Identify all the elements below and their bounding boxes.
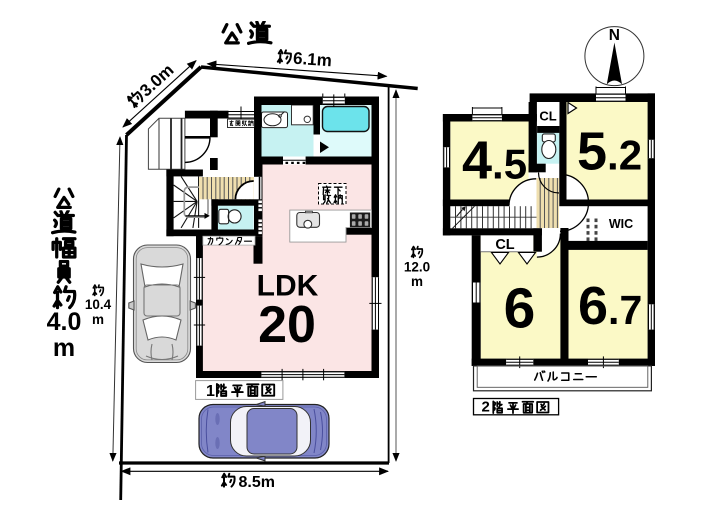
svg-text:m: m — [411, 274, 423, 289]
svg-text:6: 6 — [504, 277, 536, 341]
svg-text:N: N — [609, 27, 620, 44]
svg-text:12.0: 12.0 — [404, 260, 430, 275]
svg-text:CL: CL — [495, 237, 514, 253]
svg-text:8.5m: 8.5m — [239, 474, 275, 491]
svg-text:1: 1 — [206, 383, 215, 400]
svg-text:WIC: WIC — [609, 217, 633, 231]
svg-text:CL: CL — [539, 109, 556, 124]
svg-text:m: m — [53, 334, 75, 362]
svg-text:m: m — [92, 312, 104, 327]
svg-text:10.4: 10.4 — [85, 297, 112, 312]
svg-text:2: 2 — [482, 399, 490, 416]
svg-text:4.0: 4.0 — [47, 308, 82, 336]
svg-text:6.1m: 6.1m — [293, 49, 333, 71]
svg-text:20: 20 — [258, 296, 316, 354]
